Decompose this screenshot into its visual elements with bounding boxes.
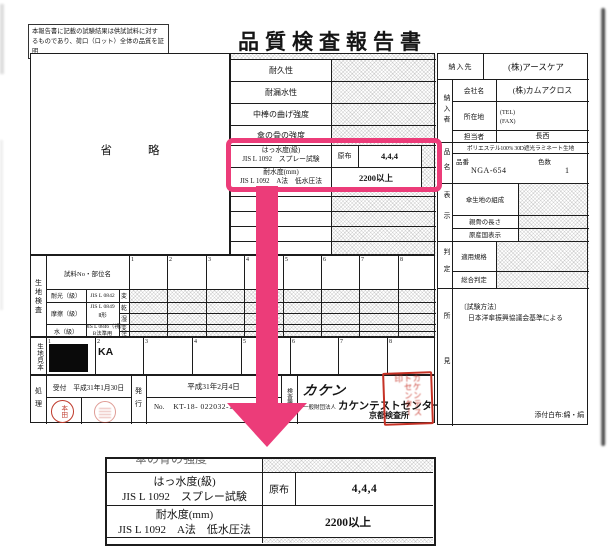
quality-inspection-report: 本報告書に記載の試験結果は供試試料に対す るものであり、荷口（ロット）全体の品質… bbox=[0, 0, 613, 549]
judge-row-standard: 適用規格 bbox=[452, 241, 496, 271]
sub-label: 湿 bbox=[119, 313, 129, 324]
colors-value: 1 bbox=[565, 166, 569, 175]
supplier-value: (株)アースケア bbox=[483, 54, 589, 79]
col-number: 4 bbox=[246, 257, 249, 263]
display-label: 表示 bbox=[438, 183, 452, 241]
page-title: 品質検査報告書 bbox=[238, 26, 427, 56]
zoom-callout-box: 傘の骨の強度 はっ水度(級) JIS L 1092 スプレー試験 原布 4,4,… bbox=[105, 457, 436, 546]
deliverer-label: 納入者 bbox=[438, 79, 452, 142]
person-label: 担当者 bbox=[452, 130, 496, 142]
test-row-leak-resistance: 耐漏水性 bbox=[231, 81, 331, 103]
col-number: 2 bbox=[169, 257, 172, 263]
zoom-spray-label: はっ水度(級) JIS L 1092 スプレー試験 bbox=[107, 475, 262, 505]
company-value: (株)カムアクロス bbox=[496, 79, 589, 101]
test-row-shaft-bending: 中棒の曲げ強度 bbox=[231, 103, 331, 125]
test-row-durability: 耐久性 bbox=[231, 59, 331, 81]
findings-label: 所見 bbox=[438, 288, 452, 426]
company-label: 会社名 bbox=[452, 79, 496, 101]
rubbing-label: 摩擦（級） bbox=[46, 302, 86, 324]
display-row-origin: 原産国表示 bbox=[452, 228, 518, 241]
zoom-spray-value: 4,4,4 bbox=[296, 472, 433, 505]
sample-number: 6 bbox=[292, 339, 295, 345]
tel-label: (TEL) bbox=[500, 110, 515, 116]
reception-date: 受付 平成31年1月30日 bbox=[46, 376, 131, 397]
issue-label: 発行 bbox=[131, 376, 146, 424]
scan-edge-right bbox=[600, 8, 606, 446]
fabric-description: ポリエステル100% 30D遮光ラミネート生地 bbox=[452, 142, 589, 153]
fabric-samples-label: 生地見本 bbox=[31, 338, 46, 376]
rubbing-method: JIS L 0849 Ⅱ形 bbox=[86, 303, 119, 321]
zoom-water-label: 耐水度(mm) JIS L 1092 A法 低水圧法 bbox=[107, 508, 262, 538]
judgement-label: 判定 bbox=[438, 241, 452, 288]
sample-number: 7 bbox=[340, 339, 343, 345]
person-value: 長西 bbox=[496, 130, 589, 142]
supplier-label: 納入先 bbox=[438, 54, 483, 79]
lightfastness-label: 耐光（級） bbox=[46, 289, 86, 302]
display-row-composition: 傘生地の組成 bbox=[452, 183, 518, 215]
colors-label: 色数 bbox=[538, 156, 551, 166]
kaken-seal: カケンテストセンター印 bbox=[382, 371, 434, 426]
address-label: 所在地 bbox=[452, 101, 496, 130]
judge-row-overall: 総合判定 bbox=[452, 271, 496, 288]
omitted-text: 略 bbox=[148, 142, 160, 158]
no-value: KT-18- 022032-1 bbox=[173, 402, 233, 411]
fabric-samples-row: 生地見本 1 2 3 4 5 6 7 8 KA bbox=[30, 337, 435, 375]
sample-number: 5 bbox=[243, 339, 246, 345]
sample-no-header: 試料No・部位名 bbox=[46, 256, 129, 289]
sub-label: 乾 bbox=[119, 302, 129, 313]
issue-number: No. KT-18- 022032-1 bbox=[154, 402, 233, 411]
clipped-previous-row: 傘の骨の強度 bbox=[107, 459, 262, 472]
redacted-box bbox=[49, 344, 88, 372]
processing-label: 処理 bbox=[31, 376, 46, 424]
kaken-logo: カケン bbox=[302, 379, 348, 399]
lightfastness-method: JIS L 0842 bbox=[86, 289, 119, 302]
attachment-note: 添付白布:綿・絹 bbox=[535, 409, 584, 419]
sample-mark: KA bbox=[98, 346, 113, 358]
agency-org-type: 一般財団法人 bbox=[303, 403, 336, 411]
water-fastness-label: 水（級） bbox=[46, 324, 86, 338]
fabric-inspection-table: 生地検査 試料No・部位名 1 2 3 4 5 6 7 8 耐光（級） JIS … bbox=[30, 255, 435, 337]
scan-edge-left-top bbox=[0, 4, 4, 74]
scan-edge-left-mid bbox=[0, 140, 3, 310]
sample-number: 8 bbox=[389, 339, 392, 345]
faint-round-stamp bbox=[94, 401, 116, 423]
test-method-body: 日本洋傘振興協議会基準による bbox=[468, 312, 563, 322]
omitted-text: 省 bbox=[101, 142, 113, 158]
col-number: 3 bbox=[208, 257, 211, 263]
col-number: 8 bbox=[400, 257, 403, 263]
right-info-table: 納入先 (株)アースケア 納入者 会社名 (株)カムアクロス 所在地 (TEL)… bbox=[437, 53, 588, 425]
no-label: No. bbox=[154, 403, 164, 411]
fabric-inspection-label: 生地検査 bbox=[31, 256, 46, 338]
item-no-label: 品番 bbox=[456, 156, 469, 166]
disclaimer-line1: 本報告書に記載の試験結果は供試試料に対す bbox=[32, 27, 165, 37]
omitted-box: 省 略 bbox=[30, 53, 230, 255]
col-number: 7 bbox=[361, 257, 364, 263]
zoom-water-value: 2200以上 bbox=[263, 505, 433, 538]
col-number: 1 bbox=[131, 257, 134, 263]
sub-label: 変 bbox=[119, 289, 129, 302]
sample-number: 3 bbox=[145, 339, 148, 345]
sample-number: 2 bbox=[97, 339, 100, 345]
col-number: 6 bbox=[323, 257, 326, 263]
highlight-box bbox=[226, 138, 442, 192]
zoom-spray-sample: 原布 bbox=[263, 472, 295, 505]
item-no-value: NGA-654 bbox=[471, 166, 507, 175]
display-row-rib-length: 親骨の長さ bbox=[452, 215, 518, 228]
reception-stamp: 本田 bbox=[51, 400, 74, 423]
fax-label: (FAX) bbox=[500, 119, 516, 125]
test-method-title: 〔試験方法〕 bbox=[460, 301, 501, 311]
callout-arrow-shaft bbox=[256, 186, 278, 404]
col-number: 5 bbox=[285, 257, 288, 263]
callout-arrow-head bbox=[227, 403, 307, 447]
sample-number: 4 bbox=[194, 339, 197, 345]
